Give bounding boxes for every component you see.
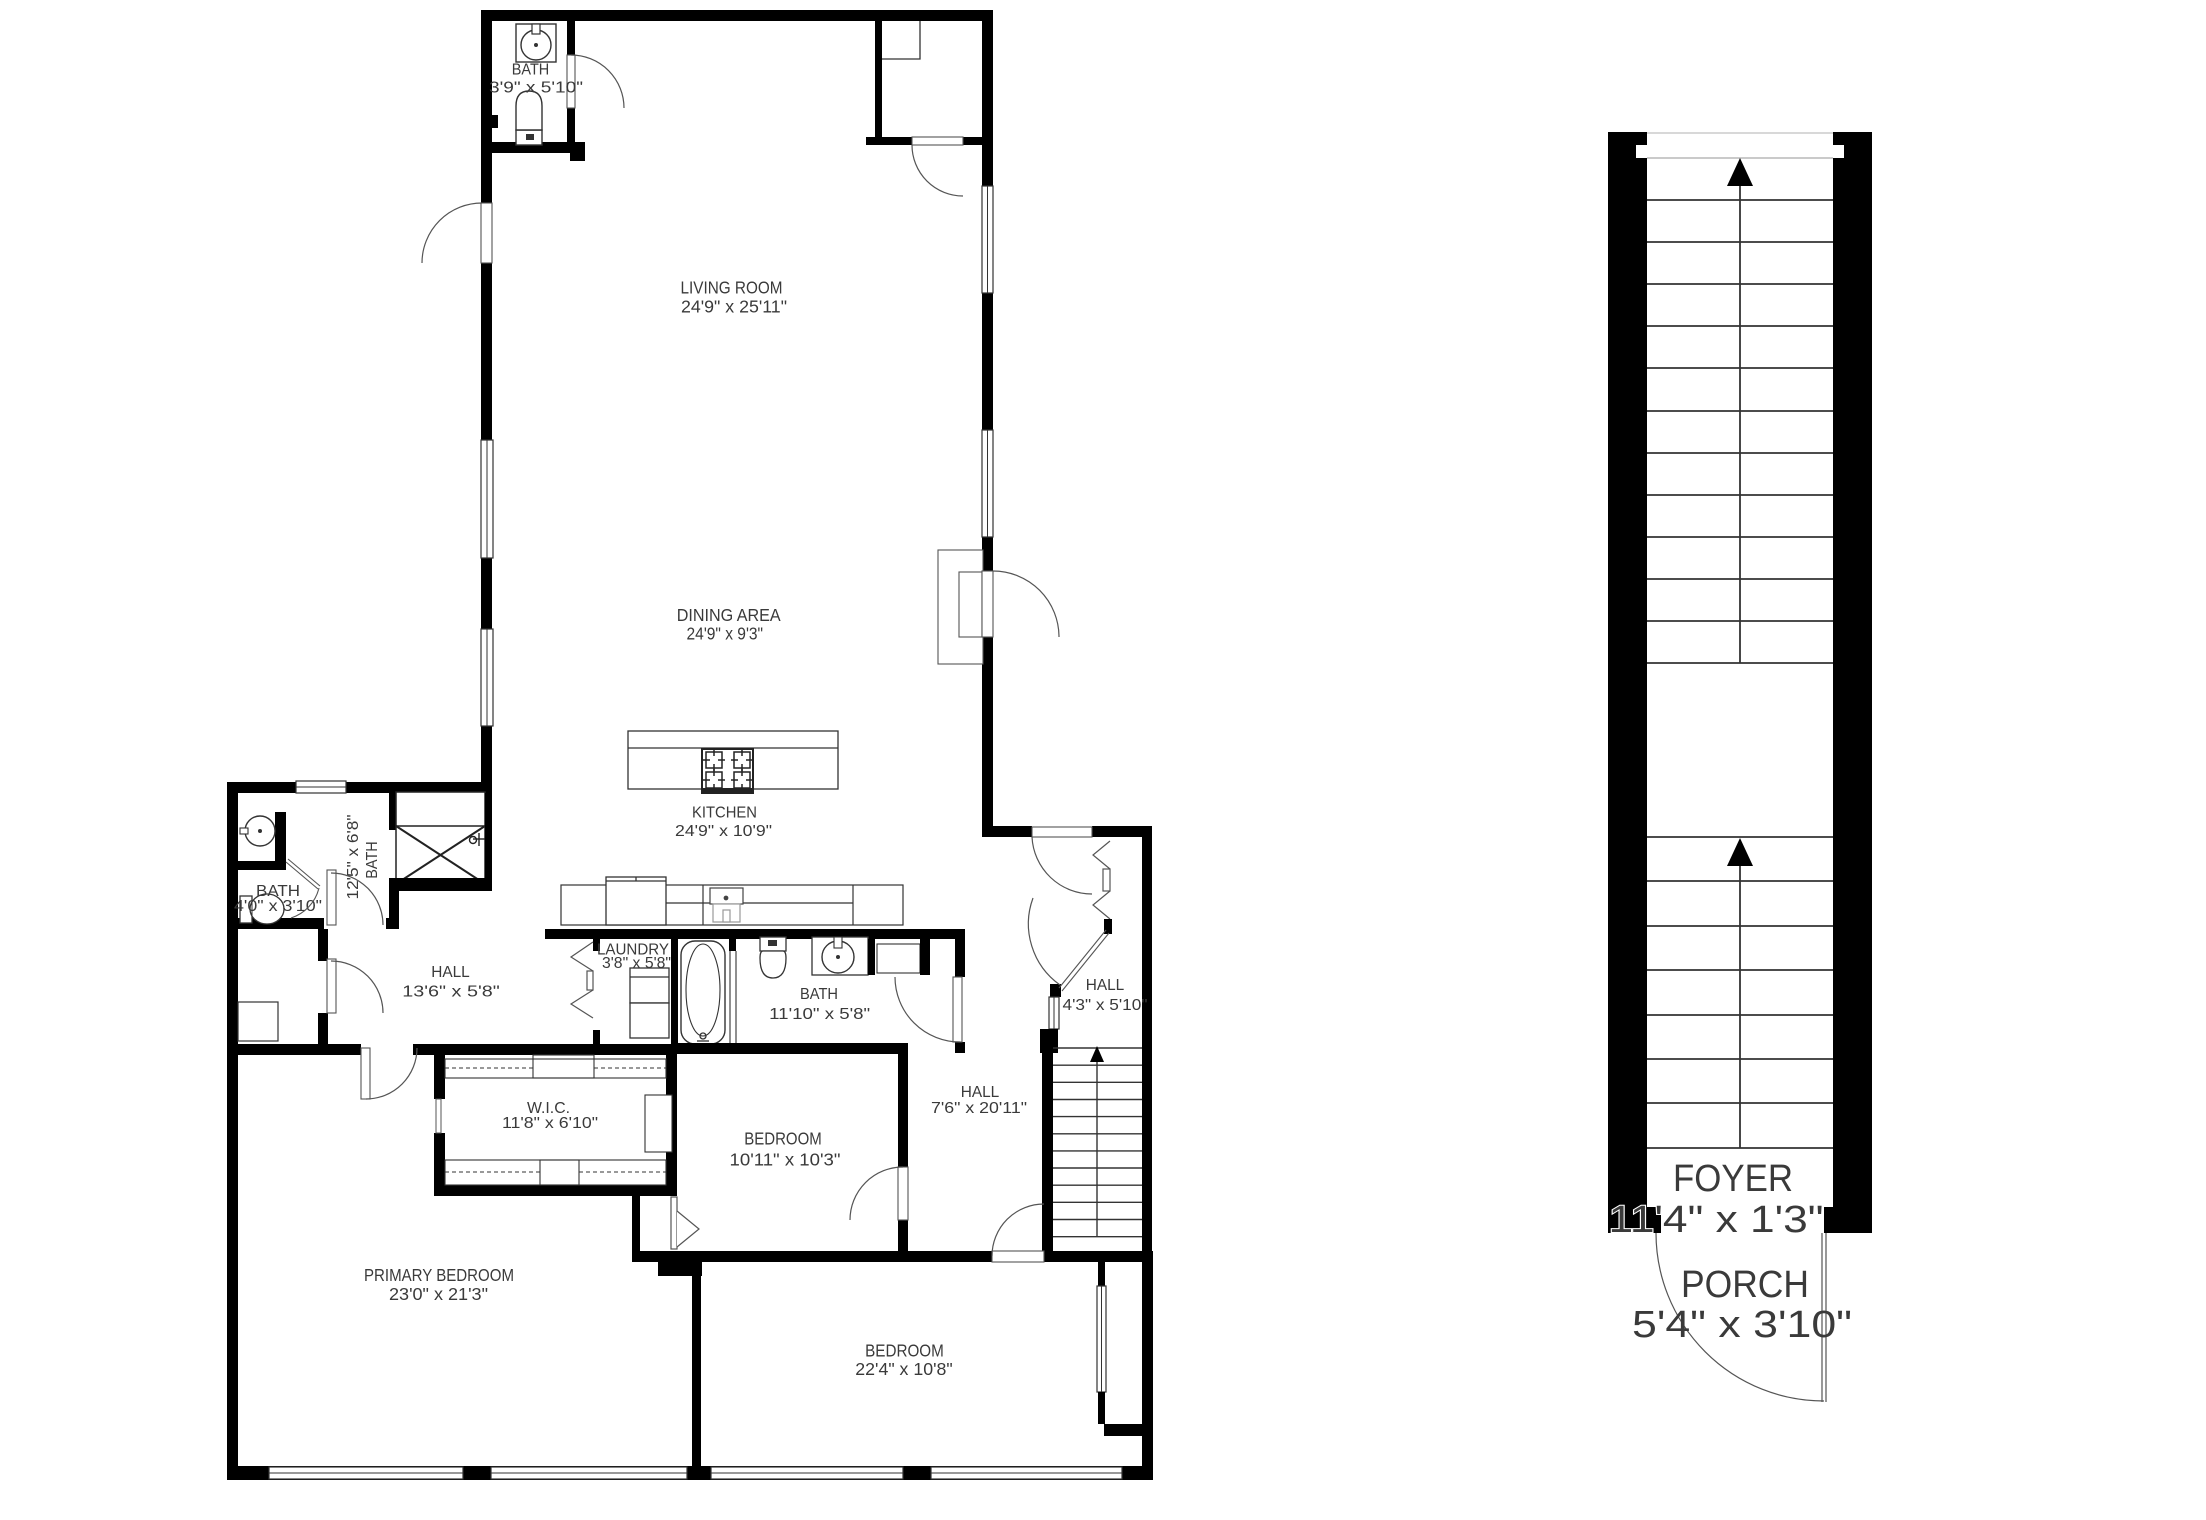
svg-text:24'9" x 10'9": 24'9" x 10'9" xyxy=(675,823,772,840)
svg-text:PORCH: PORCH xyxy=(1681,1264,1809,1306)
svg-text:HALL: HALL xyxy=(1086,977,1125,994)
svg-text:DINING AREA: DINING AREA xyxy=(677,605,781,625)
svg-text:23'0" x 21'3": 23'0" x 21'3" xyxy=(389,1284,488,1304)
svg-text:KITCHEN: KITCHEN xyxy=(692,805,757,822)
svg-text:4'3" x 5'10": 4'3" x 5'10" xyxy=(1063,997,1148,1014)
svg-text:3'9" x 5'10": 3'9" x 5'10" xyxy=(489,80,583,97)
svg-text:12'5" x 6'8": 12'5" x 6'8" xyxy=(345,815,362,900)
svg-text:24'9" x 9'3": 24'9" x 9'3" xyxy=(687,623,764,643)
svg-text:BATH: BATH xyxy=(512,62,550,79)
svg-text:BATH: BATH xyxy=(800,986,838,1003)
svg-text:BATH: BATH xyxy=(364,841,381,879)
svg-text:FOYER: FOYER xyxy=(1673,1158,1793,1200)
svg-text:PRIMARY BEDROOM: PRIMARY BEDROOM xyxy=(364,1265,514,1285)
svg-text:11'8" x 6'10": 11'8" x 6'10" xyxy=(502,1115,598,1132)
svg-text:5'4" x 3'10": 5'4" x 3'10" xyxy=(1632,1304,1852,1346)
svg-text:HALL: HALL xyxy=(431,964,470,981)
svg-text:HALL: HALL xyxy=(961,1084,1000,1101)
svg-text:BEDROOM: BEDROOM xyxy=(744,1129,822,1149)
svg-text:3'8" x 5'8": 3'8" x 5'8" xyxy=(602,955,671,972)
svg-text:24'9" x 25'11": 24'9" x 25'11" xyxy=(681,297,787,317)
svg-text:BEDROOM: BEDROOM xyxy=(865,1341,944,1361)
svg-text:7'6" x 20'11": 7'6" x 20'11" xyxy=(931,1100,1027,1117)
svg-text:11'10" x 5'8": 11'10" x 5'8" xyxy=(769,1006,870,1023)
svg-text:22'4" x 10'8": 22'4" x 10'8" xyxy=(855,1359,952,1379)
svg-text:10'11" x 10'3": 10'11" x 10'3" xyxy=(730,1150,841,1170)
svg-text:11'4" x 1'3": 11'4" x 1'3" xyxy=(1609,1199,1824,1241)
svg-text:LIVING ROOM: LIVING ROOM xyxy=(681,277,783,297)
svg-text:13'6" x 5'8": 13'6" x 5'8" xyxy=(402,983,500,1000)
